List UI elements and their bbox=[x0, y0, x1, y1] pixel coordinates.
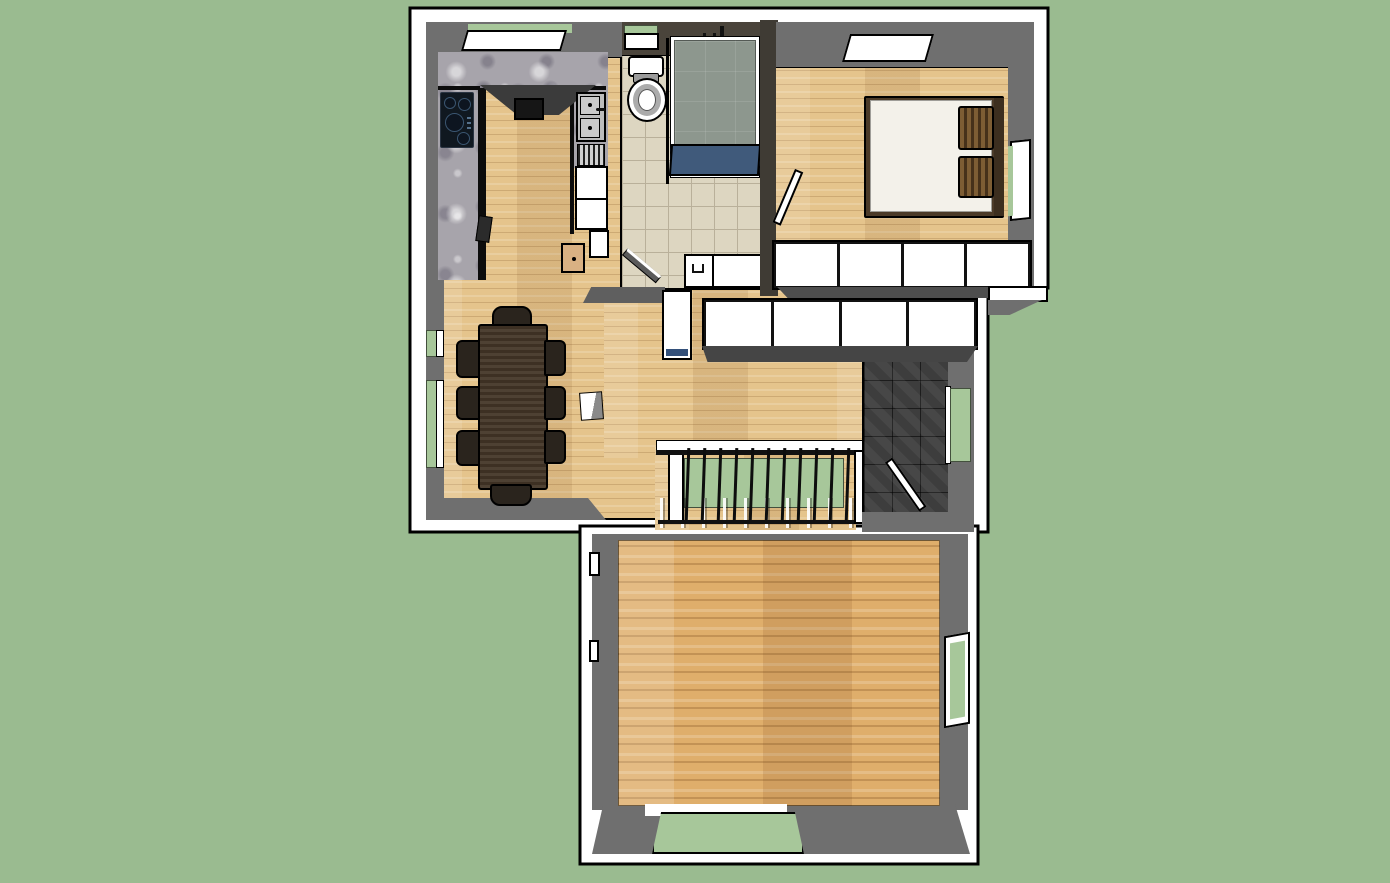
passage-wall-top bbox=[583, 287, 665, 303]
closet-door bbox=[967, 244, 1028, 286]
vanity-sink-mark bbox=[692, 264, 704, 273]
closet-door bbox=[776, 244, 837, 286]
dining-chair-right-1 bbox=[544, 340, 566, 376]
cooktop-controls bbox=[467, 115, 471, 129]
bed-pillow-2 bbox=[958, 156, 994, 198]
lower-room-floor bbox=[618, 540, 940, 806]
entry-window bbox=[950, 388, 971, 462]
sink-drain-2 bbox=[588, 126, 592, 130]
dining-chair-left-2 bbox=[456, 386, 480, 420]
dining-table bbox=[478, 324, 548, 490]
cooktop bbox=[440, 92, 474, 148]
counter-top-edge-left bbox=[438, 86, 480, 90]
under-sink-cabinet bbox=[575, 166, 608, 230]
burner-medium bbox=[457, 132, 470, 145]
bed-pillow-1 bbox=[958, 106, 994, 150]
burner-small-2 bbox=[458, 98, 471, 111]
floorplan-canvas bbox=[0, 0, 1390, 883]
closet-door bbox=[774, 302, 839, 346]
bathroom-vanity bbox=[684, 254, 762, 288]
tub-front-panel bbox=[669, 144, 761, 176]
burner-small-1 bbox=[444, 97, 456, 109]
closet-door bbox=[840, 244, 901, 286]
bedroom-window-sill bbox=[1008, 146, 1013, 217]
vanity-divider bbox=[712, 256, 714, 286]
tall-cabinet-blue-base bbox=[666, 349, 688, 356]
dining-chair-right-2 bbox=[544, 386, 566, 420]
kitchen-window bbox=[461, 30, 567, 51]
small-tan-cabinet bbox=[561, 243, 585, 273]
dining-window-2 bbox=[436, 380, 444, 468]
range-hood-center bbox=[514, 98, 544, 120]
entry-bottom-wall bbox=[862, 512, 974, 532]
small-white-box bbox=[589, 230, 609, 258]
bedroom-skylight bbox=[842, 34, 934, 62]
dining-chair-bottom bbox=[490, 484, 532, 506]
lower-room-wall-notch-2 bbox=[589, 640, 599, 662]
toilet-seat bbox=[627, 78, 667, 122]
counter-left-edge bbox=[478, 88, 486, 280]
shower-glass-panel bbox=[666, 38, 669, 184]
hallway-closet-row bbox=[702, 298, 978, 350]
tall-cabinet bbox=[662, 290, 692, 360]
kitchen-sink bbox=[576, 92, 606, 142]
wall-step-trim bbox=[988, 286, 1048, 302]
dining-chair-left-1 bbox=[456, 340, 480, 378]
counter-sink-edge bbox=[570, 90, 574, 234]
patio-opening-ground bbox=[652, 812, 804, 854]
hallway-closet-shadow bbox=[702, 346, 978, 362]
closet-door bbox=[706, 302, 771, 346]
sink-faucet bbox=[596, 108, 605, 111]
cabinet-divider bbox=[577, 198, 606, 200]
closet-door bbox=[842, 302, 907, 346]
closet-door bbox=[904, 244, 965, 286]
dining-chair-left-3 bbox=[456, 430, 480, 466]
drainboard bbox=[577, 144, 605, 166]
bathroom-window bbox=[624, 33, 659, 50]
closet-door bbox=[909, 302, 974, 346]
bed-headboard bbox=[994, 98, 1004, 216]
lower-room-window-sill bbox=[950, 641, 965, 720]
sink-drain-1 bbox=[588, 103, 592, 107]
stair-post-left bbox=[668, 452, 684, 522]
dining-chair-right-3 bbox=[544, 430, 566, 464]
bedroom-closet-row bbox=[772, 240, 1032, 290]
toilet-bowl bbox=[638, 89, 656, 111]
pedestal-cube bbox=[579, 391, 604, 421]
dining-window-1 bbox=[436, 330, 444, 357]
burner-large bbox=[445, 113, 464, 132]
lower-room-wall-notch-1 bbox=[589, 552, 600, 576]
bedroom-window bbox=[1010, 139, 1031, 221]
cabinet-knob bbox=[572, 257, 576, 261]
railing-bottom-rail bbox=[658, 520, 856, 524]
